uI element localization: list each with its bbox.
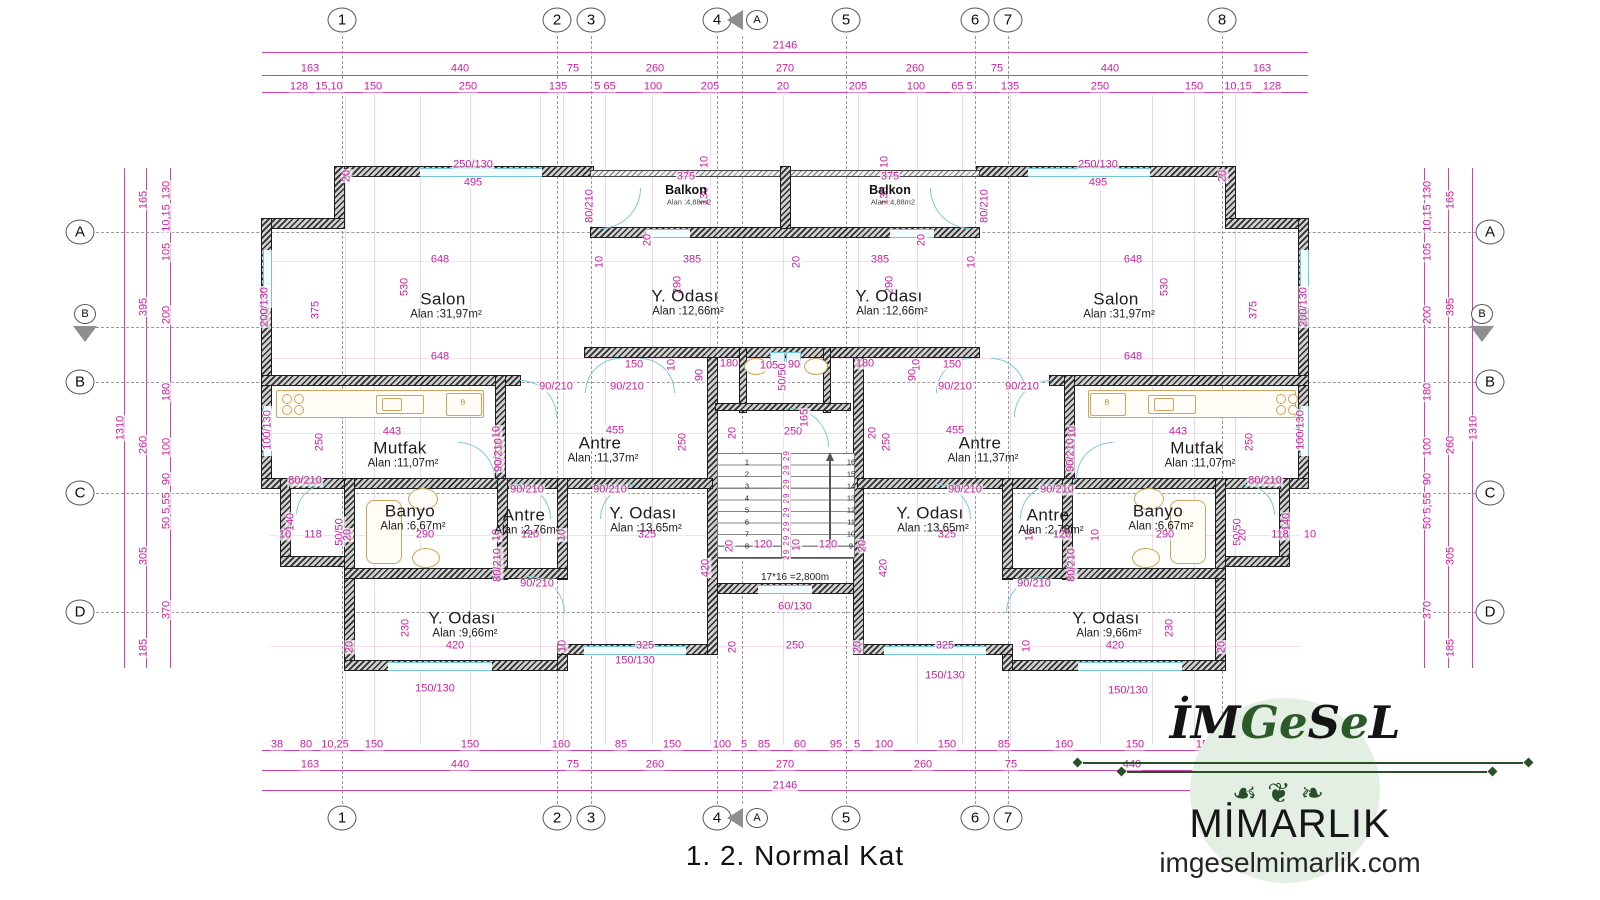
dim-label: 250	[458, 82, 478, 93]
room-area-label: Alan :4,88m2	[870, 198, 916, 206]
room-area-label: Alan :11,07m²	[367, 458, 440, 470]
section-marker-arrow-icon	[727, 808, 743, 828]
dim-label: 100/130	[1296, 409, 1307, 451]
grid-bubble-6: 6	[961, 806, 990, 831]
room-label: Balkon	[664, 184, 708, 197]
stove-burner-icon	[1276, 405, 1286, 415]
stove-burner-icon	[282, 394, 292, 404]
dim-label: 230	[401, 618, 412, 638]
dim-label: 160	[1054, 740, 1074, 751]
dim-label: 5	[740, 740, 748, 751]
dim-label: 90/210	[947, 485, 983, 496]
dim-label: 648	[1123, 255, 1143, 266]
stair-step-number: 1	[745, 458, 749, 466]
grid-line	[975, 36, 976, 804]
logo-brand-letter: S	[1308, 696, 1341, 749]
stair-wall	[708, 348, 717, 654]
dim-label: 20	[1217, 640, 1228, 654]
dim-label: 120	[818, 540, 838, 551]
dim-label: 270	[775, 760, 795, 771]
grid-bubble-6: 6	[961, 8, 990, 33]
dim-label: 10	[558, 639, 569, 653]
dim-label: 10	[967, 255, 978, 269]
dim-label: 15,10	[314, 82, 344, 93]
dim-label: 90/210	[1004, 382, 1040, 393]
dim-label: 90/210	[538, 382, 574, 393]
grid-bubble-C: C	[1476, 481, 1505, 506]
stair-direction-line	[829, 460, 831, 550]
room-label: Banyo	[384, 503, 436, 520]
wall	[716, 404, 850, 410]
dim-label: 128	[289, 82, 309, 93]
dim-label: 80/210	[1067, 547, 1078, 583]
dim-label: 100	[643, 82, 663, 93]
dim-label: 185	[1446, 638, 1457, 658]
dim-label: 1310	[1469, 415, 1480, 441]
logo-brand-letter: L	[1369, 696, 1401, 749]
stair-step-number: 6	[745, 518, 749, 526]
dim-label: 150/130	[1107, 686, 1149, 697]
section-marker-arrow-icon	[727, 10, 743, 30]
dim-label: 10	[1303, 530, 1317, 541]
dim-label: 90/210	[1039, 485, 1075, 496]
logo-brand-letter: G	[1241, 696, 1279, 749]
dim-label: 260	[905, 64, 925, 75]
dim-label: 75	[1004, 760, 1018, 771]
dim-label: 80/210	[287, 476, 323, 487]
dim-label: 100	[874, 740, 894, 751]
logo-website: imgeselmimarlik.com	[1095, 847, 1485, 879]
dim-label: 29 29 29 29 29 29 29 29	[783, 449, 791, 561]
stove-burner-icon	[294, 394, 304, 404]
section-line	[742, 36, 743, 804]
dim-label: 65 5	[950, 82, 973, 93]
kitchen-sink	[382, 398, 402, 411]
grid-line	[591, 36, 592, 804]
stair-step-number: 9	[849, 542, 853, 550]
stair-step-number: 12	[847, 506, 855, 514]
dim-label: 205	[700, 82, 720, 93]
dim-label: 80/210	[980, 188, 991, 224]
room-label: Antre	[578, 435, 623, 452]
floor-plan-sheet: 1122334455667788AABBCCDDAABB	[0, 0, 1600, 900]
wall	[1217, 557, 1289, 566]
dim-label: 150	[1184, 82, 1204, 93]
dim-label: 648	[1123, 352, 1143, 363]
room-area-label: Alan :4,88m2	[666, 198, 712, 206]
dim-label: 180	[1423, 382, 1434, 402]
dim-label: 1310	[116, 415, 127, 441]
dim-label: 75	[566, 64, 580, 75]
dim-label: 150	[364, 740, 384, 751]
dim-label: 90/210	[1066, 437, 1077, 473]
dim-label: 375	[676, 172, 696, 183]
dim-label: 530	[400, 277, 411, 297]
grid-bubble-B: B	[74, 304, 96, 324]
dim-label: 250	[1245, 432, 1256, 452]
stair-step-number: 7	[745, 530, 749, 538]
dim-label: 200/130	[1299, 286, 1310, 328]
grid-bubble-B: B	[1476, 370, 1505, 395]
grid-bubble-B: B	[1471, 304, 1493, 324]
stair-step-number: 10	[847, 530, 855, 538]
door-arc	[458, 442, 495, 479]
room-label: Balkon	[868, 184, 912, 197]
grid-bubble-7: 7	[994, 806, 1023, 831]
ornament-line	[1127, 771, 1487, 773]
room-area-label: Alan :13,65m²	[609, 523, 683, 535]
room-area-label: Alan :9,66m²	[1075, 628, 1142, 640]
dim-label: 10	[278, 530, 292, 541]
dim-label: 20	[853, 640, 864, 654]
grid-bubble-5: 5	[832, 8, 861, 33]
dim-label: 20	[1238, 528, 1249, 542]
door-arc	[296, 484, 327, 515]
dim-label: 5,55	[1423, 491, 1434, 514]
dim-label: 165	[800, 408, 811, 428]
dim-label: 420	[445, 641, 465, 652]
dim-label: 10,15	[1223, 82, 1253, 93]
wall	[262, 219, 344, 228]
dim-label: 90	[162, 472, 173, 486]
dim-label: 90/210	[509, 485, 545, 496]
dim-label: 200/130	[260, 286, 271, 328]
room-label: Mutfak	[1169, 440, 1224, 457]
grid-bubble-A: A	[746, 808, 768, 828]
kitchen-sink	[1154, 398, 1174, 411]
dim-label: 10,15	[1423, 203, 1434, 233]
dim-label: 260	[645, 760, 665, 771]
dim-label: 150	[624, 360, 644, 371]
dim-label: 20	[342, 169, 353, 183]
stair-step-number: 4	[745, 494, 749, 502]
dim-label: 270	[775, 64, 795, 75]
dim-label: 420	[879, 558, 890, 578]
dim-label: 60	[793, 740, 807, 751]
room-area-label: Alan :6,67m²	[379, 521, 446, 533]
room-area-label: Alan :2,76m²	[1017, 525, 1084, 537]
dim-label: 90	[908, 368, 919, 382]
dim-label: 75	[990, 64, 1004, 75]
dim-label: 205	[848, 82, 868, 93]
dim-label: 165	[1446, 190, 1457, 210]
stair-step-number: 14	[847, 482, 855, 490]
dim-label: 150/130	[414, 684, 456, 695]
dim-label: 20	[345, 640, 356, 654]
dim-label: 530	[1160, 277, 1171, 297]
dim-label: 150/130	[924, 671, 966, 682]
dim-label: 100	[712, 740, 732, 751]
grid-bubble-D: D	[66, 600, 95, 625]
stair-step-number: 3	[745, 482, 749, 490]
grid-bubble-A: A	[746, 10, 768, 30]
dim-label: 150/130	[614, 656, 656, 667]
room-area-label: Alan :2,76m²	[493, 525, 560, 537]
door-arc	[600, 188, 641, 229]
dim-label: 50	[162, 516, 173, 530]
dim-label: 10	[1091, 528, 1102, 542]
stove-burner-icon	[282, 405, 292, 415]
room-label: Y. Odası	[650, 288, 719, 305]
dim-label: 90	[695, 368, 706, 382]
room-label: Banyo	[1132, 503, 1184, 520]
wall	[781, 167, 790, 228]
room-area-label: Alan :31,97m²	[409, 309, 483, 321]
dim-label: 5 65	[593, 82, 616, 93]
stair-step-number: 13	[847, 494, 855, 502]
dim-label: 90/210	[592, 485, 628, 496]
grid-bubble-C: C	[66, 481, 95, 506]
window	[1078, 662, 1182, 671]
dim-label: 20	[728, 426, 739, 440]
room-label: Y. Odası	[854, 288, 923, 305]
room-label: Y. Odası	[427, 610, 496, 627]
grid-bubble-1: 1	[328, 8, 357, 33]
dim-label: 90/210	[494, 437, 505, 473]
dim-label: 100/130	[263, 409, 274, 451]
ornament-line	[1083, 762, 1523, 764]
room-label: Salon	[419, 291, 466, 308]
section-marker-arrow-icon	[73, 326, 97, 342]
grid-bubble-3: 3	[577, 806, 606, 831]
dim-label: 100	[1423, 437, 1434, 457]
dim-label: 260	[1446, 435, 1457, 455]
logo-brand-letter: M	[1191, 696, 1241, 749]
dim-label: 150	[662, 740, 682, 751]
stair-step-number: 8	[745, 542, 749, 550]
dim-label: 375	[880, 172, 900, 183]
dim-label: 60/130	[777, 602, 813, 613]
dim-label: 250	[882, 432, 893, 452]
dim-label: 118	[1270, 530, 1290, 541]
grid-bubble-1: 1	[328, 806, 357, 831]
dim-label: 180	[162, 382, 173, 402]
dim-label: 250	[315, 432, 326, 452]
dim-label: 230	[1165, 618, 1176, 638]
dim-label: 90/210	[519, 579, 555, 590]
stair-step-number: 15	[847, 470, 855, 478]
room-label: Antre	[502, 507, 547, 524]
dim-label: 250	[1090, 82, 1110, 93]
dim-label: 80/210	[493, 547, 504, 583]
grid-line	[342, 36, 343, 804]
grid-bubble-7: 7	[994, 8, 1023, 33]
dim-label: 443	[382, 427, 402, 438]
room-area-label: Alan :13,65m²	[896, 523, 970, 535]
dim-label: 90/210	[609, 382, 645, 393]
stair-step-number: 5	[745, 506, 749, 514]
wall	[1226, 219, 1308, 228]
dim-label: 180	[855, 359, 875, 370]
dim-label: 10	[595, 255, 606, 269]
wall	[281, 557, 353, 566]
wall	[740, 348, 746, 412]
stove-burner-icon	[294, 405, 304, 415]
dim-label: 20	[792, 255, 803, 269]
room-label: Y. Odası	[1071, 610, 1140, 627]
logo-brand-letter: e	[1340, 696, 1369, 749]
dim-label: 163	[300, 760, 320, 771]
stair-note: 17*16 =2,800m	[760, 573, 830, 583]
toilet	[1132, 548, 1160, 568]
dim-label: 118	[303, 530, 323, 541]
dim-label: 10	[700, 155, 711, 169]
room-area-label: Alan :31,97m²	[1082, 309, 1156, 321]
room-area-label: Alan :12,66m²	[855, 306, 929, 318]
dim-label: 305	[1446, 546, 1457, 566]
dim-label: 250	[785, 641, 805, 652]
grid-line	[846, 36, 847, 804]
drawing-title: 1. 2. Normal Kat	[686, 840, 904, 872]
dim-label: 10	[792, 538, 803, 552]
dim-label: 80	[299, 740, 313, 751]
grid-bubble-8: 8	[1208, 8, 1237, 33]
dim-label: 370	[162, 600, 173, 620]
dim-label: 20	[917, 233, 928, 247]
wall	[262, 376, 520, 385]
room-area-label: Alan :11,37m²	[947, 453, 1020, 465]
grid-line	[1222, 36, 1223, 804]
wall	[345, 479, 354, 569]
logo-brand-letter: e	[1279, 696, 1308, 749]
dim-label: 395	[139, 297, 150, 317]
dim-label: 5,55	[162, 491, 173, 514]
grid-bubble-A: A	[66, 220, 95, 245]
dim-label: 80/210	[585, 188, 596, 224]
dim-label: 85	[757, 740, 771, 751]
dim-label: 130	[162, 180, 173, 200]
dim-label: 85	[997, 740, 1011, 751]
dim-label: 420	[1105, 641, 1125, 652]
dim-label: 120	[753, 540, 773, 551]
stair-step-number: 2	[745, 470, 749, 478]
wall	[824, 348, 830, 412]
window	[388, 662, 492, 671]
dim-label: 105	[162, 242, 173, 262]
dim-label: B	[460, 400, 467, 407]
dim-label: 648	[430, 255, 450, 266]
dim-label: 250/130	[1077, 160, 1119, 171]
dim-label: 165	[139, 190, 150, 210]
dim-label: 2146	[772, 41, 798, 52]
door-arc	[930, 188, 971, 229]
dim-label: 495	[463, 178, 483, 189]
wall	[1003, 479, 1012, 579]
dim-label: 150	[460, 740, 480, 751]
grid-bubble-2: 2	[543, 806, 572, 831]
room-label: Salon	[1092, 291, 1139, 308]
dim-label: 250	[678, 432, 689, 452]
room-area-label: Alan :6,67m²	[1127, 521, 1194, 533]
wall	[1050, 376, 1308, 385]
dim-label: 2146	[772, 781, 798, 792]
dim-label: 10,25	[320, 740, 350, 751]
dim-label: B	[1104, 400, 1111, 407]
dim-label: 150	[363, 82, 383, 93]
dim-label: 105	[1423, 242, 1434, 262]
dim-label: 200	[1423, 305, 1434, 325]
dim-label: 10	[667, 358, 678, 372]
dim-label: 495	[1088, 178, 1108, 189]
grid-bubble-2: 2	[543, 8, 572, 33]
door-arc	[1244, 484, 1275, 515]
dim-label: 163	[1252, 64, 1272, 75]
dim-label: 180	[719, 359, 739, 370]
dim-label: 440	[450, 760, 470, 771]
dim-label: 20	[868, 426, 879, 440]
dim-label: 150	[937, 740, 957, 751]
room-area-label: Alan :11,37m²	[567, 453, 640, 465]
dim-label: 75	[566, 760, 580, 771]
dim-label: 325	[635, 641, 655, 652]
dim-label: 90	[787, 360, 801, 371]
dim-label: 163	[300, 64, 320, 75]
dim-label: 130	[1423, 180, 1434, 200]
dim-label: 100	[906, 82, 926, 93]
grid-line	[557, 36, 558, 804]
dim-label: 370	[1423, 600, 1434, 620]
room-label: Y. Odası	[895, 505, 964, 522]
dim-label: 20	[1218, 169, 1229, 183]
grid-bubble-A: A	[1476, 220, 1505, 245]
dim-label: 260	[139, 435, 150, 455]
stove-burner-icon	[1276, 394, 1286, 404]
door-arc	[1076, 442, 1113, 479]
dim-label: 305	[139, 546, 150, 566]
dim-label: 440	[1100, 64, 1120, 75]
dim-label: 38	[270, 740, 284, 751]
dim-label: 150	[942, 360, 962, 371]
dim-label: 325	[935, 641, 955, 652]
toilet	[804, 358, 828, 375]
dim-label: 80/210	[1247, 476, 1283, 487]
dim-label: 90	[1423, 472, 1434, 486]
wall	[1216, 479, 1225, 569]
room-label: Y. Odası	[608, 505, 677, 522]
dim-label: 100	[162, 437, 173, 457]
dim-label: 648	[430, 352, 450, 363]
dim-label: 50/50	[778, 362, 789, 392]
room-area-label: Alan :9,66m²	[431, 628, 498, 640]
dim-label: 185	[139, 638, 150, 658]
dim-label: 20	[343, 528, 354, 542]
dim-label: 135	[548, 82, 568, 93]
dim-label: 90/210	[937, 382, 973, 393]
dim-label: 250/130	[452, 160, 494, 171]
grid-line	[1008, 36, 1009, 804]
section-marker-arrow-icon	[1470, 326, 1494, 342]
dim-label: 20	[776, 82, 790, 93]
dim-label: 10,15	[162, 203, 173, 233]
dim-label: 385	[870, 255, 890, 266]
dim-label: 50	[1423, 516, 1434, 530]
stair-wall	[854, 348, 863, 654]
room-label: Antre	[958, 435, 1003, 452]
window	[758, 585, 812, 594]
dim-label: 200	[162, 305, 173, 325]
dim-label: 385	[682, 255, 702, 266]
dim-label: 20	[858, 539, 869, 553]
dim-label: 443	[1168, 427, 1188, 438]
dim-label: 135	[1000, 82, 1020, 93]
stair-direction-arrow-icon	[826, 452, 834, 461]
dim-label: 375	[311, 300, 322, 320]
stair-step-number: 16	[847, 458, 855, 466]
dim-label: 160	[551, 740, 571, 751]
dim-label: 20	[643, 233, 654, 247]
dim-label: 440	[450, 64, 470, 75]
dim-label: 260	[913, 760, 933, 771]
